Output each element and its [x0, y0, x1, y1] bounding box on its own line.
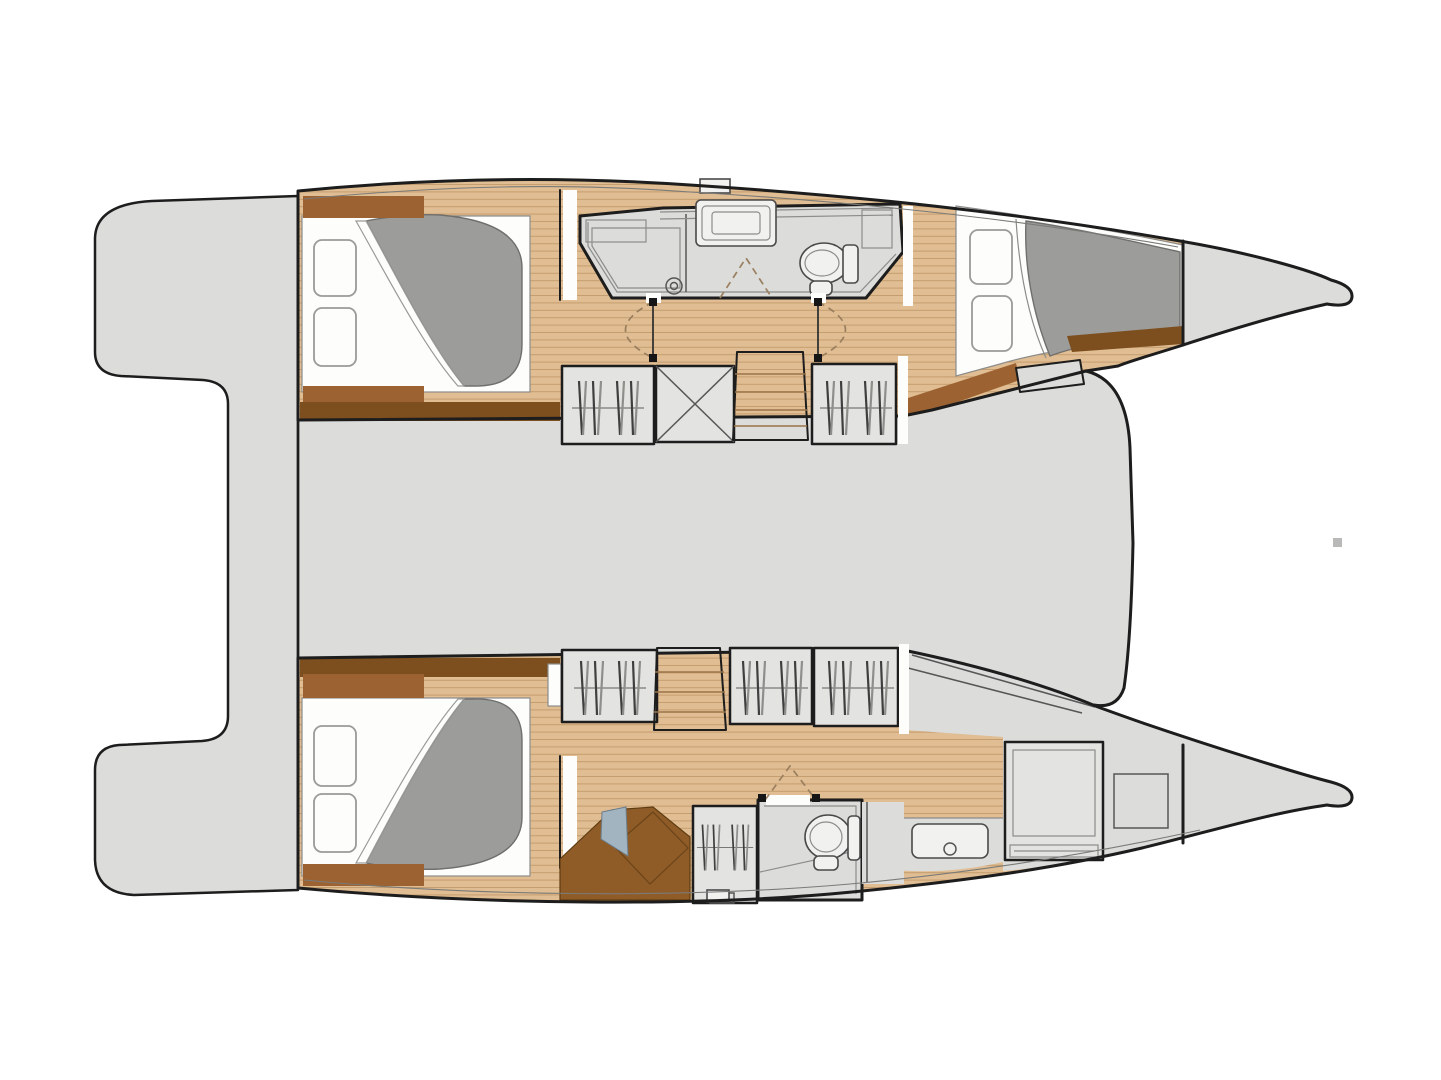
- mast-bulkhead-gap: [903, 206, 913, 306]
- hanging-locker: [562, 650, 657, 722]
- catamaran-layout-plan: [0, 0, 1441, 1080]
- pillow: [314, 308, 356, 366]
- door-hinge: [814, 298, 822, 306]
- port-forepeak: [1183, 241, 1352, 345]
- pillow: [314, 794, 356, 852]
- stray-pixel-artifact: [1333, 538, 1342, 547]
- stern-platform: [95, 193, 298, 895]
- pillow: [970, 230, 1012, 284]
- pillow: [314, 726, 356, 786]
- catamaran-floorplan-canvas: Catamaran interior layout plan — overhea…: [0, 0, 1441, 1080]
- door-hinge: [649, 298, 657, 306]
- hanging-locker: [562, 366, 654, 444]
- headboard-shelf: [303, 196, 424, 218]
- toilet-base: [810, 281, 832, 295]
- mast-bulkhead-gap: [899, 644, 909, 734]
- washstand: [912, 824, 988, 858]
- door-hinge: [814, 354, 822, 362]
- door-hinge: [812, 794, 820, 802]
- partition-gap: [563, 190, 577, 300]
- partition-gap: [548, 664, 561, 706]
- pillow: [314, 240, 356, 296]
- transom-platform: [95, 196, 298, 895]
- toilet-base: [814, 856, 838, 870]
- footboard-shelf: [303, 864, 424, 886]
- door-hinge: [758, 794, 766, 802]
- pillow: [972, 296, 1012, 351]
- shower-nook: [862, 802, 904, 884]
- bow-locker: [1183, 241, 1352, 345]
- headboard-shelf: [303, 674, 424, 698]
- toilet-bowl: [800, 243, 848, 283]
- door-opening: [766, 795, 810, 805]
- toilet-cistern: [848, 816, 860, 860]
- toilet-cistern: [843, 245, 858, 283]
- door-hinge: [649, 354, 657, 362]
- single-berth: [1005, 742, 1103, 860]
- counter-basin: [912, 824, 988, 858]
- vanity-unit: [696, 200, 776, 246]
- mast-bulkhead-gap: [898, 356, 908, 444]
- starboard-companionway-row: [562, 644, 909, 734]
